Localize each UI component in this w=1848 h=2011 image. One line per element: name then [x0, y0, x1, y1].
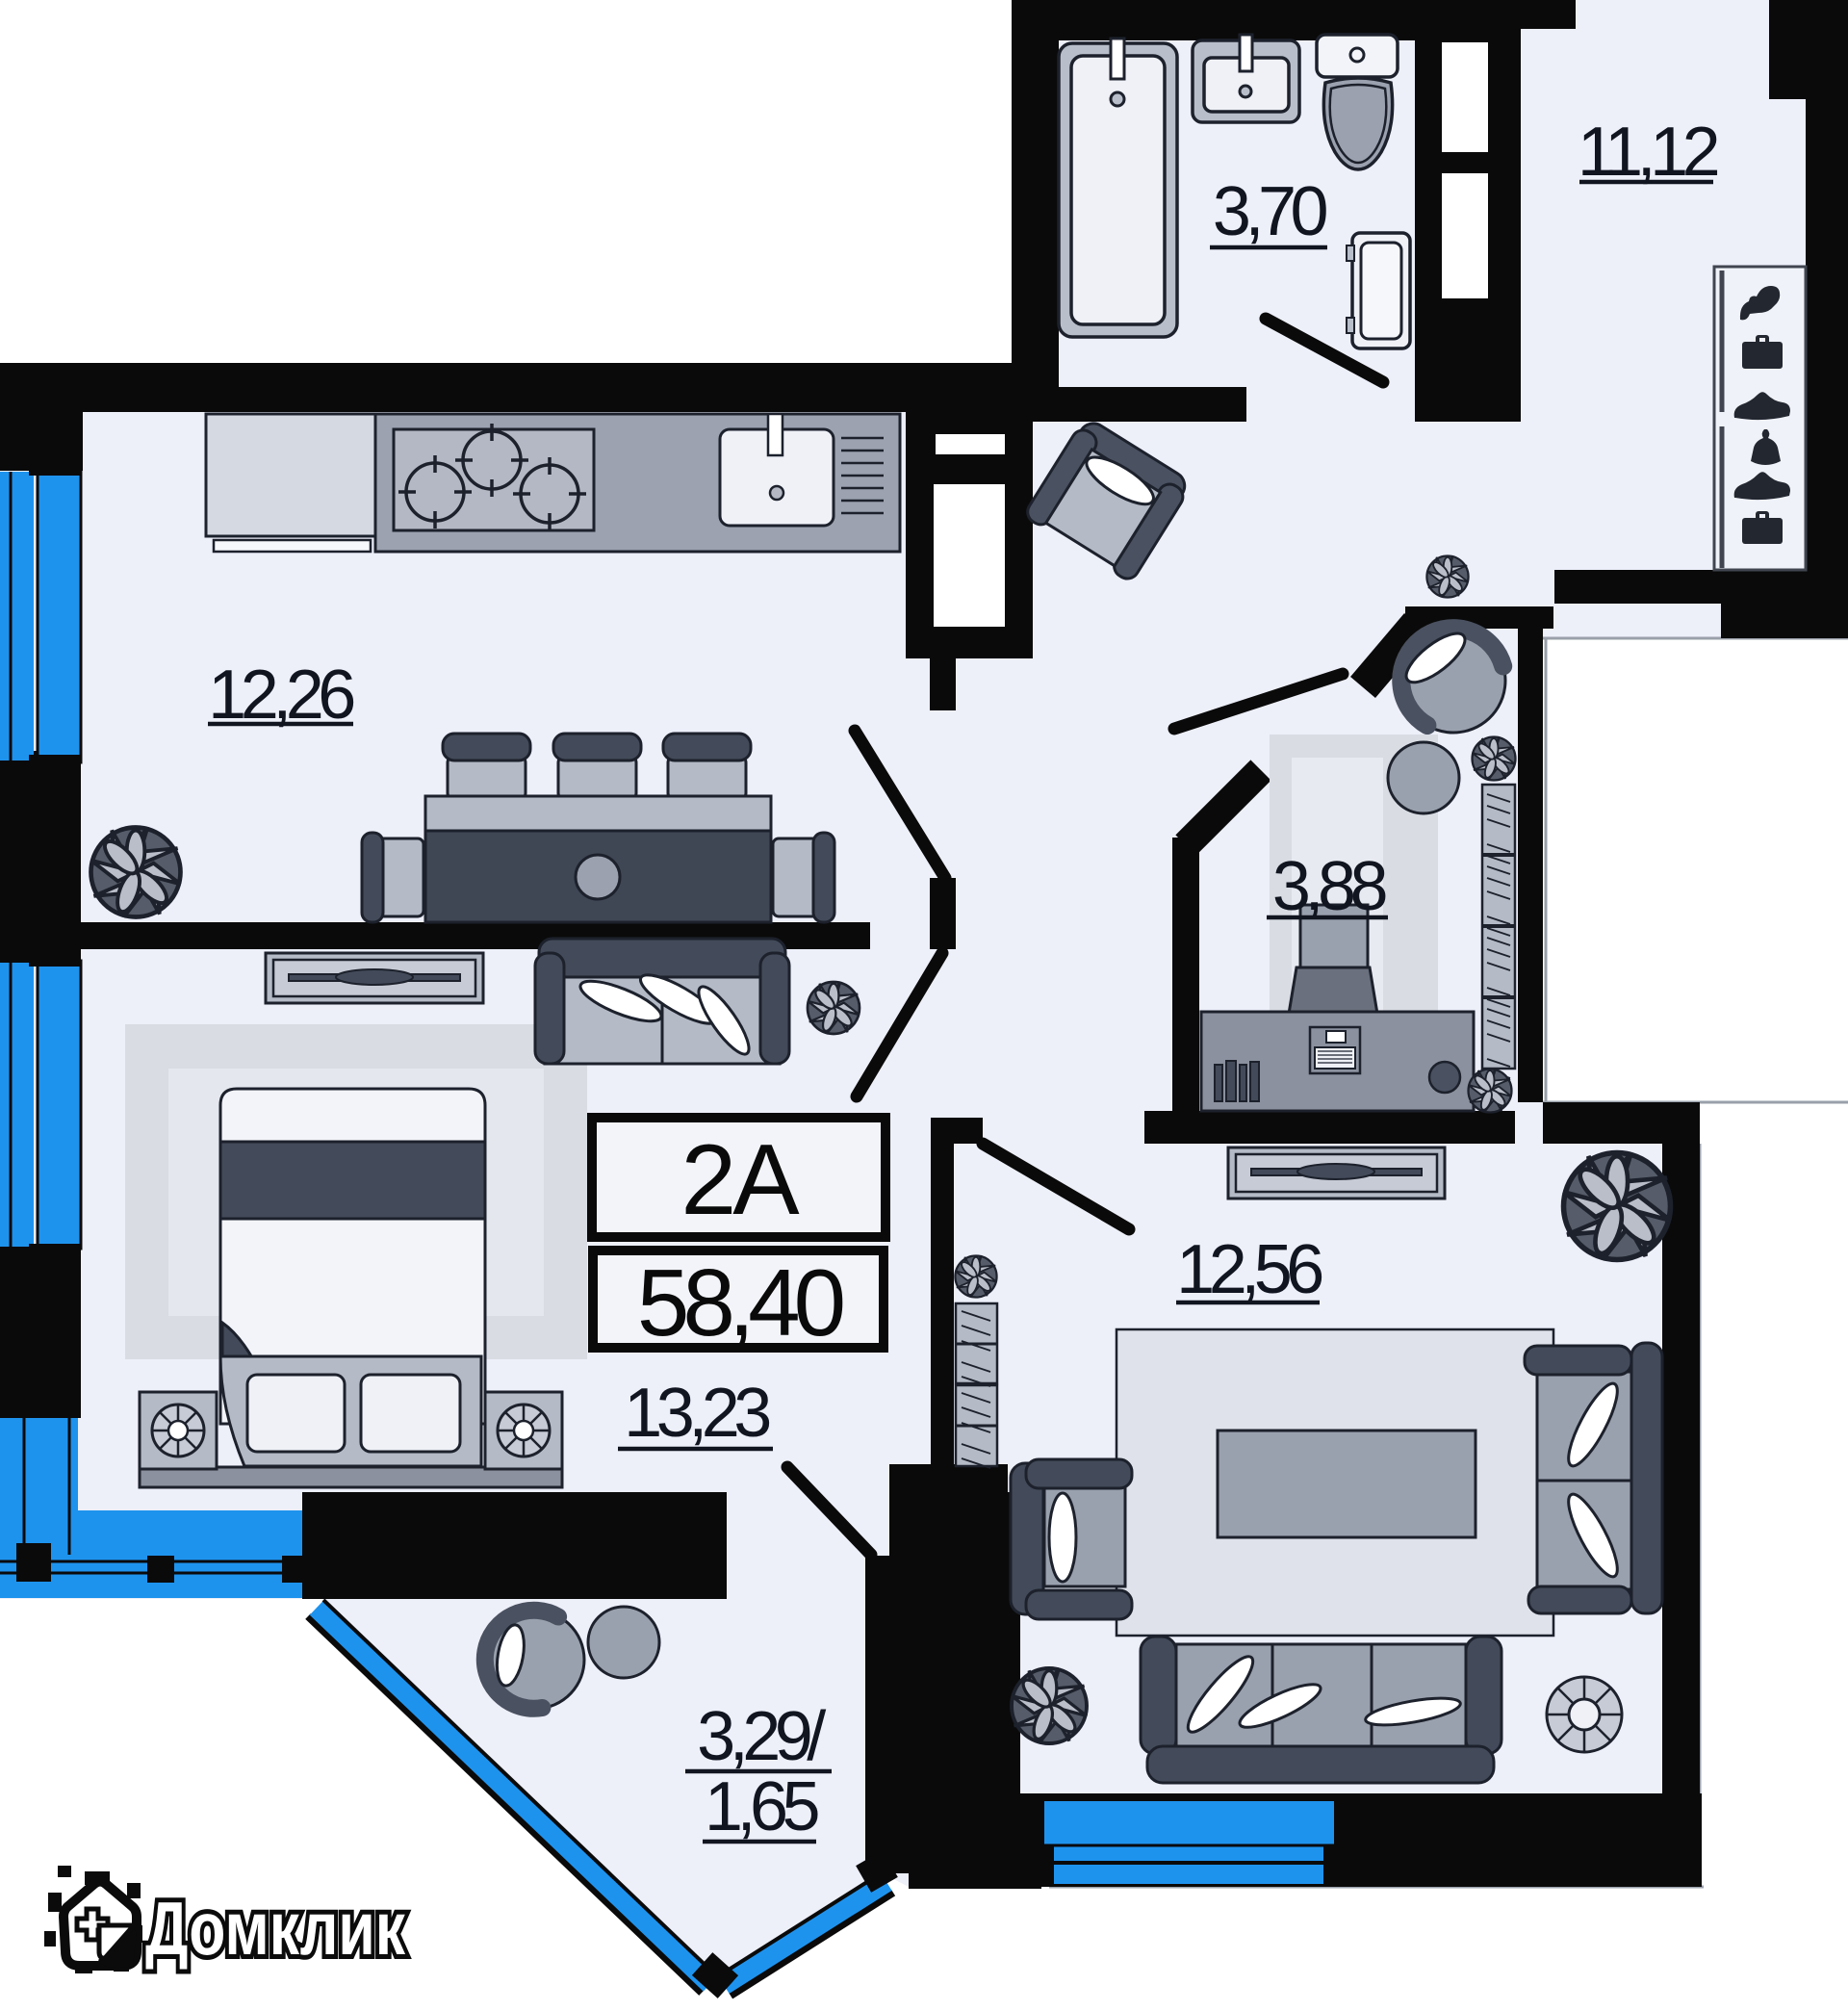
svg-text:3,29/: 3,29/: [697, 1698, 826, 1775]
svg-text:13,23: 13,23: [624, 1375, 769, 1452]
svg-text:1,65: 1,65: [705, 1768, 819, 1845]
svg-text:58,40: 58,40: [637, 1250, 843, 1355]
svg-text:3,88: 3,88: [1272, 848, 1386, 925]
svg-text:2A: 2A: [680, 1124, 800, 1236]
svg-text:11,12: 11,12: [1578, 114, 1718, 191]
svg-text:3,70: 3,70: [1213, 173, 1327, 250]
svg-text:12,56: 12,56: [1176, 1231, 1322, 1308]
svg-text:Домклик: Домклик: [145, 1886, 406, 1971]
